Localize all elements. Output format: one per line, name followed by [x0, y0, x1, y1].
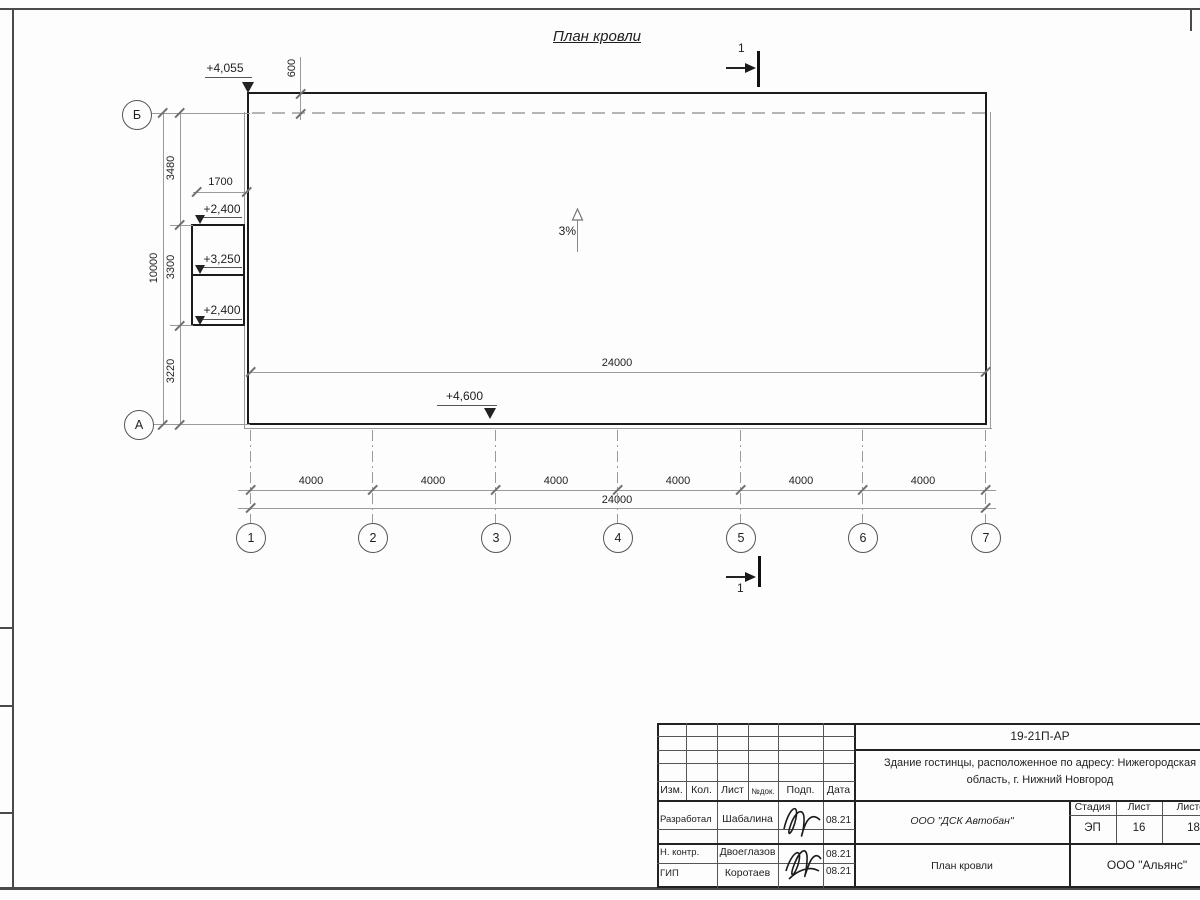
section-arrow	[745, 63, 756, 73]
project-name-line1: Здание гостинцы, расположенное по адресу…	[855, 757, 1200, 769]
dim-line-left-chain	[180, 112, 181, 425]
person-name: Двоеглазов	[717, 846, 778, 858]
sheet-number: 16	[1116, 822, 1162, 834]
slope-label: 3%	[536, 224, 576, 238]
revision-header-kol: Кол.	[686, 784, 717, 796]
revision-header-podp: Подп.	[778, 784, 823, 796]
axis-bubble-5: 5	[726, 523, 756, 553]
titleblock-line	[657, 829, 855, 830]
elevation-arrow	[195, 215, 205, 224]
axis-bubble-7: 7	[971, 523, 1001, 553]
grid-line	[372, 430, 373, 523]
dim-bay: 4000	[638, 475, 718, 487]
parapet-line-right	[990, 112, 991, 429]
axis-bubble-A: А	[124, 410, 154, 440]
section-cut-bar	[758, 556, 761, 587]
frame-left	[12, 8, 14, 890]
section-arrow	[745, 572, 756, 582]
axis-label: 7	[983, 531, 990, 545]
grid-line	[617, 430, 618, 523]
signature-scribbles	[778, 799, 823, 887]
section-cut-bar	[757, 51, 760, 87]
margin-tick	[0, 705, 12, 707]
drawing-sheet: План кровли 600 3480 10000 3300 3220 170…	[0, 0, 1200, 900]
sheets-total: 18	[1162, 822, 1200, 834]
person-name: Коротаев	[717, 867, 778, 879]
dim-24000-inner: 24000	[577, 357, 657, 369]
revision-header-izm: Изм.	[657, 784, 686, 796]
dim-3300: 3300	[165, 227, 177, 307]
roof-hidden-edge-dashed	[252, 112, 988, 114]
dim-bay: 4000	[271, 475, 351, 487]
axis-label: 1	[248, 531, 255, 545]
person-name: Шабалина	[717, 813, 778, 825]
person-date: 08.21	[823, 815, 854, 826]
dim-bay: 4000	[393, 475, 473, 487]
elevation-arrow	[195, 316, 205, 325]
axis-label: 4	[615, 531, 622, 545]
titleblock-line	[657, 750, 855, 751]
elevation-leader	[201, 319, 242, 320]
doc-number: 19-21П-АР	[855, 729, 1200, 743]
elevation-roof-bottom: +4,600	[437, 389, 492, 403]
margin-tick	[0, 812, 12, 814]
titleblock-line	[657, 781, 855, 782]
elevation-leader	[201, 267, 242, 268]
revision-header-ndok: №док.	[748, 787, 778, 796]
sheet-title: План кровли	[855, 860, 1069, 872]
axis-line-B	[151, 113, 250, 114]
stage-header-listov: Листов	[1162, 801, 1200, 813]
dim-3480: 3480	[165, 128, 177, 208]
section-label-bottom: 1	[737, 581, 744, 595]
dim-10000: 10000	[148, 228, 160, 308]
slope-arrow-head	[571, 208, 584, 221]
titleblock-line	[854, 749, 1200, 751]
elevation-leader	[437, 405, 497, 406]
person-role: ГИП	[660, 868, 679, 879]
stage-header-stadiya: Стадия	[1069, 801, 1116, 813]
dim-line-24000-inner	[250, 372, 985, 373]
dim-3220: 3220	[165, 331, 177, 411]
dim-bay: 4000	[761, 475, 841, 487]
titleblock-line	[657, 736, 855, 737]
axis-label: 2	[370, 531, 377, 545]
roof-outline	[247, 92, 987, 425]
stage-value: ЭП	[1069, 822, 1116, 834]
dim-line-1700	[193, 192, 248, 193]
axis-label: 5	[738, 531, 745, 545]
dim-1700: 1700	[193, 176, 248, 188]
axis-label: 6	[860, 531, 867, 545]
slope-arrow-line	[577, 216, 578, 252]
revision-header-list: Лист	[717, 784, 748, 796]
frame-top	[0, 8, 1200, 10]
grid-line	[495, 430, 496, 523]
drawing-title: План кровли	[532, 28, 662, 45]
elevation-leader	[201, 217, 242, 218]
grid-line	[740, 430, 741, 523]
elevation-roof-main: +4,055	[198, 61, 252, 75]
titleblock-line	[1069, 815, 1200, 816]
axis-label: Б	[133, 108, 141, 122]
dim-bay: 4000	[883, 475, 963, 487]
person-date: 08.21	[823, 849, 854, 860]
person-date: 08.21	[823, 866, 854, 877]
axis-line-A	[153, 424, 250, 425]
elevation-arrow	[195, 265, 205, 274]
axis-bubble-4: 4	[603, 523, 633, 553]
section-label-top: 1	[738, 41, 745, 55]
elevation-canopy-upper: +2,400	[199, 202, 245, 216]
person-role: Н. контр.	[660, 847, 699, 858]
dim-line-left-total	[163, 112, 164, 425]
elevation-canopy-lower: +2,400	[199, 303, 245, 317]
axis-bubble-3: 3	[481, 523, 511, 553]
grid-line	[862, 430, 863, 523]
titleblock-line	[657, 843, 1200, 845]
axis-bubble-6: 6	[848, 523, 878, 553]
axis-label: А	[135, 418, 143, 432]
stage-header-list: Лист	[1116, 801, 1162, 813]
company: ООО "Альянс"	[1069, 858, 1200, 872]
elevation-canopy-mid: +3,250	[199, 252, 245, 266]
dim-bay: 4000	[516, 475, 596, 487]
parapet-line-bottom	[244, 428, 992, 429]
extension-line	[170, 225, 193, 226]
elevation-arrow	[484, 408, 496, 419]
titleblock-line	[657, 863, 855, 864]
margin-tick	[0, 627, 12, 629]
revision-header-data: Дата	[823, 784, 854, 796]
elevation-arrow	[242, 82, 254, 93]
person-role: Разработал	[660, 814, 712, 825]
elevation-leader	[205, 77, 252, 78]
axis-label: 3	[493, 531, 500, 545]
titleblock-line	[657, 763, 855, 764]
project-name-line2: область, г. Нижний Новгород	[855, 774, 1200, 786]
axis-bubble-1: 1	[236, 523, 266, 553]
contractor: ООО "ДСК Автобан"	[855, 815, 1069, 827]
axis-bubble-2: 2	[358, 523, 388, 553]
frame-right-notch	[1190, 8, 1192, 31]
axis-bubble-B: Б	[122, 100, 152, 130]
